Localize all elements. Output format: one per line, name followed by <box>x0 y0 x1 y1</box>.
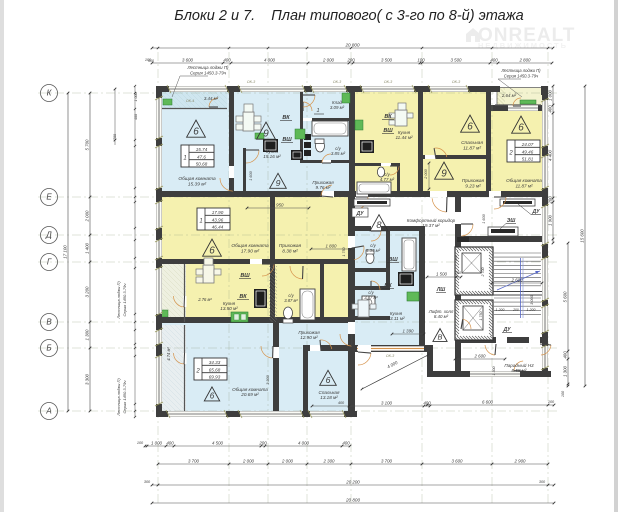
svg-text:5 600: 5 600 <box>563 291 568 303</box>
svg-text:2 800: 2 800 <box>519 58 532 63</box>
svg-text:1: 1 <box>316 108 319 114</box>
svg-text:4.74 м²: 4.74 м² <box>166 347 171 361</box>
svg-text:3 500: 3 500 <box>381 58 393 63</box>
svg-text:47.6: 47.6 <box>197 154 206 159</box>
svg-text:15.39 м²: 15.39 м² <box>188 182 207 188</box>
svg-text:2 000: 2 000 <box>242 459 255 464</box>
svg-text:ДУ: ДУ <box>532 209 541 215</box>
svg-text:1 390: 1 390 <box>403 329 415 334</box>
svg-text:ВК: ВК <box>384 114 392 120</box>
svg-text:ОК-3: ОК-3 <box>386 354 395 358</box>
svg-text:ДУ: ДУ <box>356 211 365 217</box>
svg-text:Серия 1450.3-79ч: Серия 1450.3-79ч <box>190 71 227 76</box>
svg-text:19.37 м²: 19.37 м² <box>422 223 440 228</box>
svg-text:Серия 1450.3-79ч: Серия 1450.3-79ч <box>122 284 127 317</box>
svg-text:4.77 м²: 4.77 м² <box>380 177 395 182</box>
svg-text:2 000: 2 000 <box>281 459 294 464</box>
svg-text:2 000: 2 000 <box>322 58 335 63</box>
svg-text:65.68: 65.68 <box>209 367 221 372</box>
svg-text:9.23 м²: 9.23 м² <box>465 183 481 189</box>
svg-text:400: 400 <box>490 58 498 63</box>
svg-text:1 800: 1 800 <box>326 244 338 249</box>
svg-text:43.96: 43.96 <box>212 217 224 222</box>
svg-text:9: 9 <box>276 178 281 188</box>
svg-text:300: 300 <box>539 480 546 484</box>
svg-text:6: 6 <box>209 246 215 257</box>
svg-text:2 700: 2 700 <box>481 268 485 278</box>
svg-text:200: 200 <box>258 441 267 446</box>
svg-text:1 300: 1 300 <box>85 329 90 341</box>
svg-text:20.69 м²: 20.69 м² <box>240 392 259 397</box>
svg-text:2: 2 <box>508 150 513 156</box>
svg-text:3.09 м²: 3.09 м² <box>330 105 345 110</box>
svg-text:600: 600 <box>148 59 154 63</box>
svg-text:Общая комната: Общая комната <box>231 243 269 249</box>
svg-text:1 200: 1 200 <box>496 308 505 312</box>
svg-text:400: 400 <box>548 105 553 113</box>
svg-text:24.07: 24.07 <box>521 142 534 147</box>
svg-text:200: 200 <box>454 271 461 275</box>
svg-text:3.44 м²: 3.44 м² <box>204 96 219 101</box>
svg-text:3 100: 3 100 <box>381 401 393 406</box>
svg-text:1 300: 1 300 <box>492 367 496 376</box>
svg-text:3 700: 3 700 <box>381 459 393 464</box>
svg-text:3 300: 3 300 <box>85 373 90 385</box>
svg-text:3 600: 3 600 <box>452 459 464 464</box>
svg-text:50.68: 50.68 <box>196 162 208 167</box>
svg-text:13.50 м²: 13.50 м² <box>220 306 238 311</box>
svg-text:9: 9 <box>441 169 447 180</box>
svg-text:В: В <box>438 332 443 341</box>
svg-text:ЭШ: ЭШ <box>507 218 516 224</box>
svg-text:15.16 м²: 15.16 м² <box>263 154 281 159</box>
svg-text:1 950: 1 950 <box>273 203 285 208</box>
svg-text:1 500: 1 500 <box>436 272 448 277</box>
svg-text:4 500: 4 500 <box>212 441 224 446</box>
svg-text:8: 8 <box>376 220 382 230</box>
svg-text:ВК: ВК <box>282 115 290 121</box>
svg-text:Прихожая: Прихожая <box>279 243 302 249</box>
svg-text:2 600: 2 600 <box>474 354 487 359</box>
svg-text:400: 400 <box>223 58 231 63</box>
svg-text:4 400: 4 400 <box>548 149 553 161</box>
svg-text:100: 100 <box>561 390 565 397</box>
svg-text:1 600: 1 600 <box>482 213 486 223</box>
svg-text:2 300: 2 300 <box>323 459 336 464</box>
svg-text:49.46: 49.46 <box>522 149 534 154</box>
svg-text:200: 200 <box>512 308 519 312</box>
svg-text:3 300: 3 300 <box>266 374 270 384</box>
svg-text:4 000: 4 000 <box>264 58 276 63</box>
svg-text:400: 400 <box>423 401 431 406</box>
svg-text:Лестница лоджи П): Лестница лоджи П) <box>500 68 541 73</box>
svg-text:2 000: 2 000 <box>424 168 428 179</box>
svg-text:Блоки 2 и 7. План типового(: Блоки 2 и 7. План типового( с 3-го по 8-… <box>174 8 523 24</box>
svg-text:ОК-4: ОК-4 <box>186 99 195 103</box>
svg-text:Лестница лоджи П): Лестница лоджи П) <box>116 378 121 417</box>
svg-text:3 700: 3 700 <box>188 459 200 464</box>
svg-text:8.38 м²: 8.38 м² <box>282 248 298 254</box>
svg-text:8.40 м²: 8.40 м² <box>434 314 449 319</box>
svg-text:13.11 м²: 13.11 м² <box>387 316 405 321</box>
svg-text:3 600: 3 600 <box>182 58 194 63</box>
svg-text:69.93: 69.93 <box>209 375 221 380</box>
svg-text:1 900: 1 900 <box>548 214 553 226</box>
svg-text:2.76 м²: 2.76 м² <box>197 297 212 302</box>
svg-text:20 200: 20 200 <box>345 480 360 485</box>
svg-text:20 800: 20 800 <box>344 43 359 48</box>
svg-text:400: 400 <box>134 114 138 120</box>
svg-text:34.33: 34.33 <box>209 360 221 365</box>
svg-text:1: 1 <box>183 155 186 161</box>
svg-text:3.85 м²: 3.85 м² <box>331 151 346 156</box>
svg-text:9.76 м²: 9.76 м² <box>316 185 331 190</box>
svg-text:2: 2 <box>195 368 200 374</box>
svg-text:ВШ: ВШ <box>383 128 393 134</box>
svg-text:1: 1 <box>199 218 202 224</box>
svg-text:200: 200 <box>548 196 553 205</box>
svg-text:Общая комната: Общая комната <box>506 178 542 183</box>
svg-text:46.44: 46.44 <box>212 225 224 230</box>
svg-text:1 750: 1 750 <box>342 248 346 257</box>
svg-text:Общая комната: Общая комната <box>178 176 216 182</box>
svg-text:100: 100 <box>548 400 555 404</box>
svg-text:400: 400 <box>166 441 174 446</box>
svg-text:6: 6 <box>467 122 473 133</box>
svg-text:17.90: 17.90 <box>212 210 224 215</box>
svg-text:1 200: 1 200 <box>527 308 536 312</box>
svg-text:ДУ: ДУ <box>503 327 512 333</box>
svg-text:1 000: 1 000 <box>151 441 163 446</box>
svg-text:ОК-3: ОК-3 <box>333 80 342 84</box>
svg-text:20 800: 20 800 <box>345 498 360 503</box>
svg-text:6: 6 <box>210 392 215 401</box>
svg-text:5.34 м²: 5.34 м² <box>366 248 381 253</box>
svg-text:Лестница лоджи П): Лестница лоджи П) <box>186 65 229 70</box>
svg-text:9: 9 <box>263 129 269 140</box>
svg-text:Парадный Н3: Парадный Н3 <box>504 362 534 368</box>
svg-text:Спальная: Спальная <box>461 140 483 146</box>
svg-text:6: 6 <box>518 123 524 134</box>
svg-text:Серия 1450.3-79ч: Серия 1450.3-79ч <box>122 381 127 414</box>
svg-text:2 900: 2 900 <box>514 459 527 464</box>
svg-text:3 200: 3 200 <box>85 286 90 298</box>
svg-text:15 600: 15 600 <box>580 229 585 243</box>
svg-text:ЛШ: ЛШ <box>436 287 445 293</box>
svg-text:3.87 м²: 3.87 м² <box>364 295 378 300</box>
svg-text:11.44 м²: 11.44 м² <box>395 135 413 140</box>
svg-text:Лестница лоджи П): Лестница лоджи П) <box>116 281 121 320</box>
svg-text:ВШ: ВШ <box>388 257 398 263</box>
svg-text:12.90 м²: 12.90 м² <box>300 335 318 340</box>
svg-text:ВК: ВК <box>239 294 247 300</box>
svg-text:ВК: ВК <box>384 283 392 289</box>
svg-text:Серия 1450.3-79ч: Серия 1450.3-79ч <box>504 74 539 79</box>
svg-text:11.87 м²: 11.87 м² <box>515 183 533 188</box>
svg-text:400: 400 <box>338 401 345 405</box>
svg-text:300: 300 <box>144 480 151 484</box>
svg-text:1 400: 1 400 <box>85 242 90 254</box>
svg-text:1 000: 1 000 <box>548 89 553 101</box>
svg-text:Прихожая: Прихожая <box>462 178 485 184</box>
svg-text:3.87 м²: 3.87 м² <box>284 298 298 303</box>
svg-text:17.90 м²: 17.90 м² <box>241 248 260 254</box>
svg-text:17 100: 17 100 <box>63 245 68 259</box>
svg-text:3 000: 3 000 <box>530 294 534 304</box>
svg-text:ВШ: ВШ <box>240 273 250 279</box>
svg-text:15.74: 15.74 <box>196 147 208 152</box>
svg-text:100: 100 <box>137 441 144 445</box>
svg-text:100: 100 <box>417 58 425 63</box>
svg-text:3 500: 3 500 <box>451 58 463 63</box>
svg-text:200: 200 <box>346 58 355 63</box>
svg-text:400: 400 <box>342 441 350 446</box>
svg-text:Комфортный коридор: Комфортный коридор <box>407 217 456 223</box>
svg-text:ОК-3: ОК-3 <box>384 80 393 84</box>
svg-text:1 300: 1 300 <box>563 365 568 377</box>
svg-text:6 600: 6 600 <box>482 400 494 405</box>
svg-text:400: 400 <box>563 351 568 359</box>
svg-text:2 600: 2 600 <box>511 278 524 283</box>
svg-text:ВШ: ВШ <box>282 137 292 143</box>
svg-text:6: 6 <box>193 127 199 138</box>
svg-text:ОК-3: ОК-3 <box>452 80 461 84</box>
svg-text:51.81: 51.81 <box>522 157 534 162</box>
svg-text:5 700: 5 700 <box>85 139 90 151</box>
svg-text:2 000: 2 000 <box>85 210 90 223</box>
svg-text:200: 200 <box>454 255 458 262</box>
svg-text:13.18 м²: 13.18 м² <box>320 395 338 400</box>
svg-text:ОК-3: ОК-3 <box>247 80 256 84</box>
svg-text:1 750: 1 750 <box>479 312 483 321</box>
svg-text:1 600: 1 600 <box>249 170 253 180</box>
svg-text:6: 6 <box>326 375 331 385</box>
svg-text:2.64 м²: 2.64 м² <box>501 93 517 98</box>
svg-text:11.87 м²: 11.87 м² <box>463 145 481 151</box>
svg-text:4 000: 4 000 <box>298 441 310 446</box>
svg-text:8.58 м²: 8.58 м² <box>512 368 527 373</box>
